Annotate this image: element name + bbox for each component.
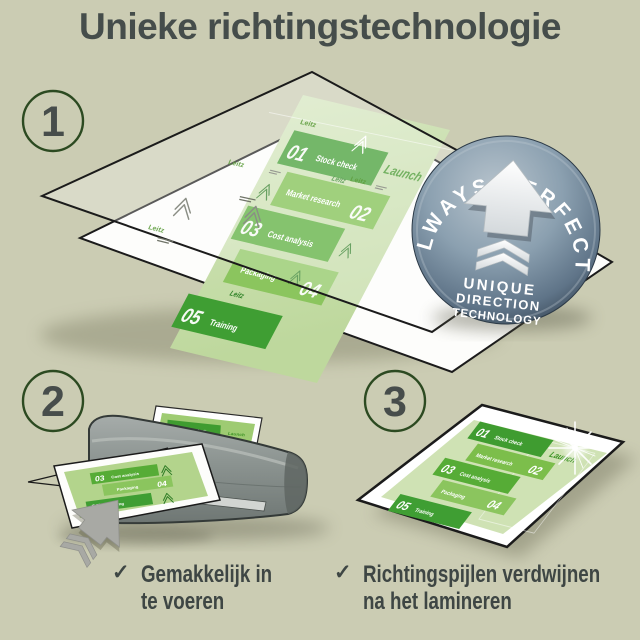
step2-laminator-illustration: 01 Stock check Launch 03 Cost analysis (28, 406, 330, 577)
step-number-1: 1 (23, 91, 83, 151)
benefit-line: Richtingspijlen verdwijnen (363, 561, 600, 588)
benefit-arrows-disappear: ✓ Richtingspijlen verdwijnen na het lami… (334, 561, 640, 615)
step-number-1-label: 1 (41, 98, 65, 146)
benefit-easy-feed-text: Gemakkelijk in te voeren (141, 561, 272, 615)
illustration-canvas: 01 Stock check Market research 02 03 Cos… (0, 0, 640, 640)
step3-laminated-result: 01 Stock check Market research 02 03 Cos… (358, 405, 637, 558)
step-number-2-label: 2 (41, 378, 65, 426)
benefit-easy-feed: ✓ Gemakkelijk in te voeren (112, 561, 309, 615)
step-number-3: 3 (365, 371, 425, 431)
benefit-line: te voeren (141, 588, 272, 615)
benefit-line: Gemakkelijk in (141, 561, 272, 588)
benefit-line: na het lamineren (363, 588, 600, 615)
step-number-3-label: 3 (383, 378, 407, 426)
step-number-2: 2 (23, 371, 83, 431)
benefit-check-icon: ✓ (334, 561, 352, 585)
laminator-front-page: 03 Cost analysis Packaging 04 05 Trainin… (28, 444, 220, 545)
benefit-arrows-disappear-text: Richtingspijlen verdwijnen na het lamine… (363, 561, 600, 615)
benefit-check-icon: ✓ (112, 561, 130, 585)
